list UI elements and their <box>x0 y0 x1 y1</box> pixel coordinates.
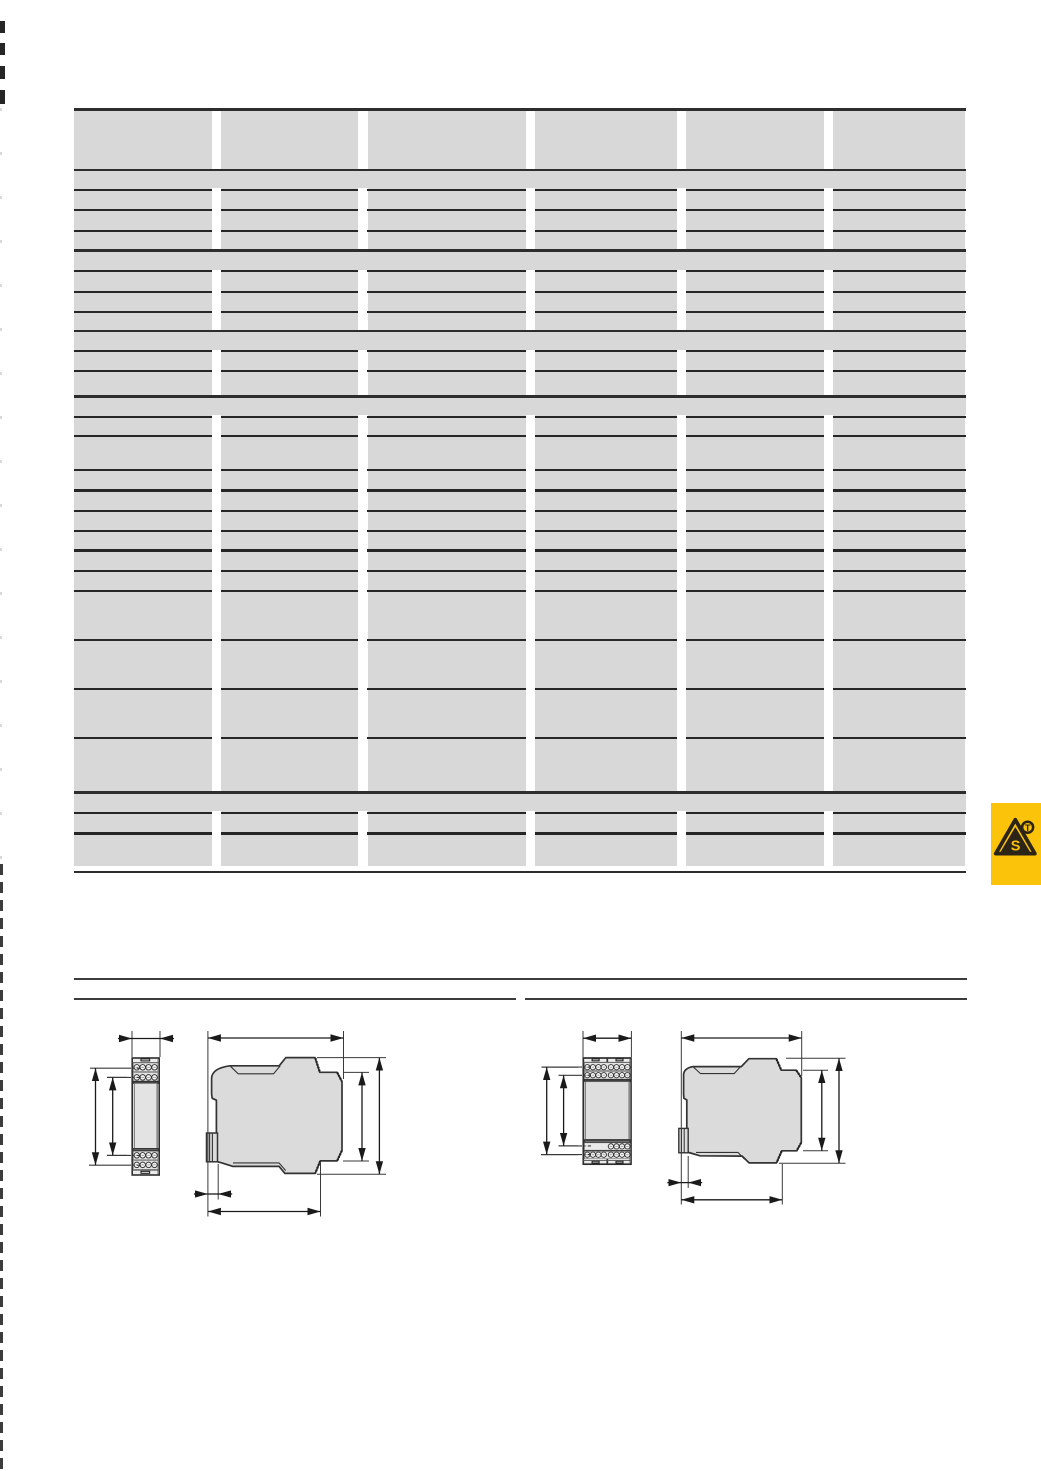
svg-text:T: T <box>1025 823 1031 834</box>
svg-text:S: S <box>1011 839 1021 855</box>
